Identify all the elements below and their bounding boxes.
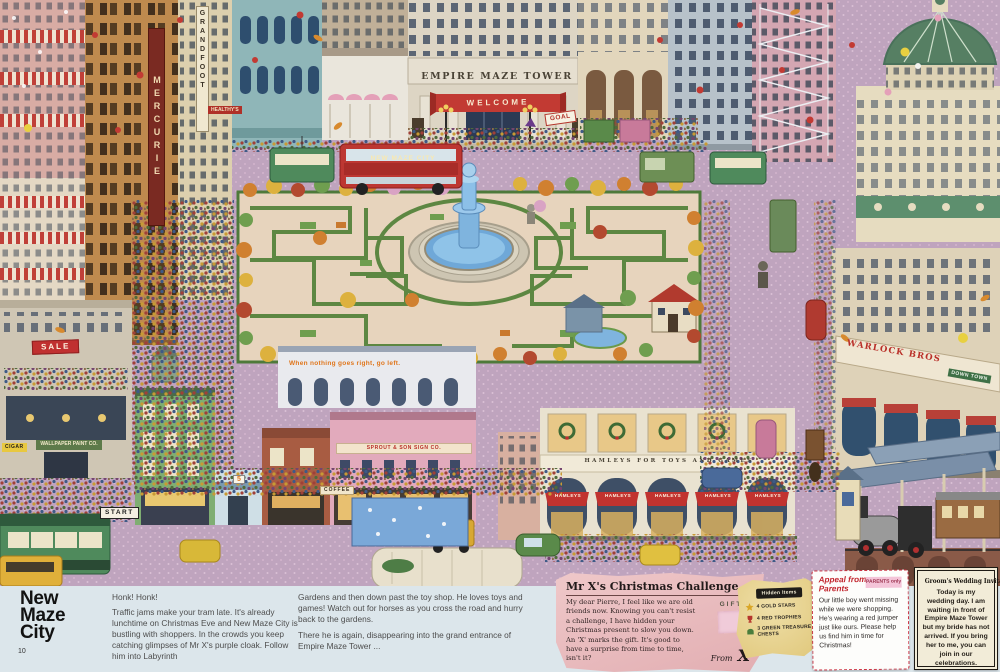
- wedding-invitation-title: Groom's Wedding Invitation: [925, 578, 988, 585]
- street-statue: [758, 261, 768, 288]
- challenge-body: My dear Pierre, I feel like we are old f…: [566, 598, 698, 664]
- toyshop-frieze-sign: HAMLEYS FOR TOYS AND GAMES: [543, 459, 795, 465]
- blue-car: [702, 468, 742, 488]
- intro-paragraph: There he is again, disappearing into the…: [298, 630, 532, 652]
- hidden-item-label: 4 GOLD STARS: [756, 602, 795, 609]
- wedding-invitation-body: Today is my wedding day. I am waiting in…: [922, 589, 990, 668]
- shop-number-sign: 5: [233, 475, 245, 484]
- gold-star-icon: [745, 603, 753, 611]
- green-umbrella: [382, 559, 414, 573]
- green-treasure-chest-icon: [746, 628, 754, 636]
- parents-appeal-body: Our little boy went missing while we wer…: [819, 597, 903, 652]
- toyshop-awning-sign: HAMLEYS: [696, 495, 740, 500]
- toyshop-awning-sign: HAMLEYS: [596, 495, 640, 500]
- intro-column-1: Honk! Honk! Traffic jams make your tram …: [112, 592, 304, 667]
- intro-paragraph: Traffic jams make your tram late. It's a…: [112, 607, 304, 662]
- empire-maze-tower-sign: EMPIRE MAZE TOWER: [414, 72, 580, 82]
- bus-destination-sign: NEW MAZE CITY: [347, 156, 459, 163]
- mr-x-challenge-letter: Mr X's Christmas Challenge My dear Pierr…: [556, 573, 764, 672]
- pink-car: [756, 420, 776, 458]
- toyshop-upper-windows: [548, 414, 786, 452]
- delivery-truck: [770, 200, 796, 252]
- taxi-2: [180, 540, 220, 562]
- teal-arched-building: [232, 0, 322, 148]
- hidden-item-label: 4 RED TROPHIES: [757, 614, 802, 622]
- intro-exclaim: Honk! Honk!: [112, 592, 304, 603]
- cafe-building-striped-awnings: [0, 0, 85, 178]
- wedding-invitation-card: Groom's Wedding Invitation Today is my w…: [914, 567, 998, 670]
- hidden-items-title: Hidden Items: [756, 587, 802, 599]
- healthys-sign: HEALTHY'S: [208, 106, 242, 114]
- tram-green-top-right: [710, 152, 766, 184]
- left-awning-building: [0, 178, 85, 300]
- balcony-band-crowd: [4, 368, 128, 390]
- parents-only-badge: PARENTS only: [866, 577, 902, 588]
- page-title: New Maze City: [20, 590, 65, 641]
- garden-statue: [527, 204, 535, 224]
- city-illustration: .to{fill:#d08030}.ty{fill:#ddb13e}.tr{fi…: [0, 0, 1000, 588]
- mercurie-vertical-sign: MERCURIE: [148, 28, 165, 226]
- start-sign: START: [100, 507, 139, 519]
- toyshop-awning-sign: HAMLEYS: [646, 495, 690, 500]
- parents-appeal-card: Appeal from Parents PARENTS only Our lit…: [811, 569, 909, 670]
- double-decker-bus: [340, 144, 462, 195]
- page-number: 10: [18, 648, 26, 655]
- cigar-sign: CIGAR: [2, 443, 27, 452]
- graffiti-building: [278, 346, 476, 408]
- taxi-1: [640, 545, 680, 565]
- train-carriage: [936, 492, 1000, 538]
- pink-brick-building-fire-escape: [752, 0, 836, 162]
- page-title-line: City: [20, 624, 65, 641]
- sale-banner: SALE: [32, 339, 80, 355]
- book-page: .to{fill:#d08030}.ty{fill:#ddb13e}.tr{fi…: [0, 0, 1000, 672]
- intro-paragraph: Gardens and then down past the toy shop.…: [298, 592, 532, 625]
- challenge-title: Mr X's Christmas Challenge: [566, 580, 754, 596]
- labyrinth-gardens: [236, 163, 704, 366]
- toyshop-awning-sign: HAMLEYS: [546, 495, 590, 500]
- red-car: [806, 300, 826, 340]
- sign-company-sign: SPROUT & SON SIGN CO.: [336, 443, 472, 454]
- intro-column-2: Gardens and then down past the toy shop.…: [298, 592, 532, 657]
- army-truck: [640, 152, 694, 182]
- wall-graffiti: When nothing goes right, go left.: [289, 361, 475, 368]
- green-car: [516, 534, 560, 556]
- toyshop-awning-sign: HAMLEYS: [746, 495, 790, 500]
- signature-from: From: [711, 654, 733, 663]
- yellow-bus: [0, 556, 62, 586]
- colonnade-building-pink-awnings: [322, 0, 408, 140]
- parents-appeal-title: Appeal from Parents: [819, 576, 871, 594]
- street-market-blanket: [352, 498, 468, 546]
- red-trophy-icon: [746, 614, 754, 622]
- wallpaper-paint-sign: WALLPAPER PAINT CO.: [36, 440, 102, 450]
- coffee-shop-sign: COFFEE: [320, 486, 354, 495]
